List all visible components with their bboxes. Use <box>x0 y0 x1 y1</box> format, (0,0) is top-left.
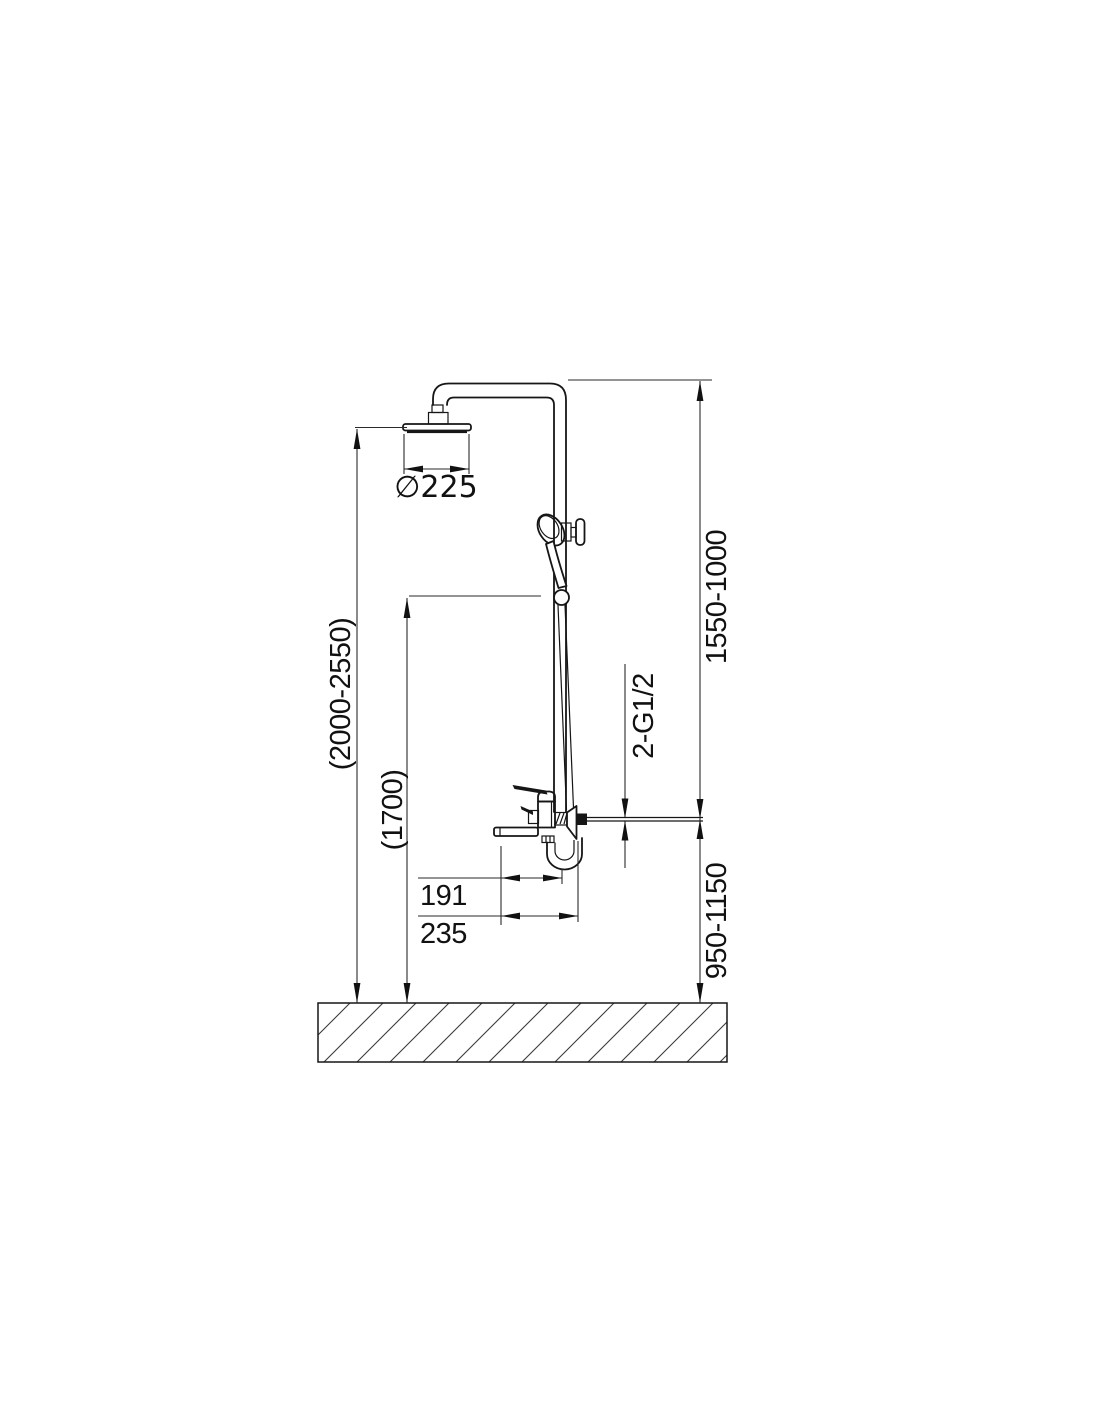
dim-arrow <box>697 983 704 1003</box>
dim-arrow <box>697 819 704 839</box>
hand-shower-face <box>535 512 563 542</box>
mixer-body <box>538 802 555 828</box>
dim-arrow <box>543 875 562 882</box>
thread-rib-2 <box>560 813 564 824</box>
hose-loop-inner <box>555 840 574 860</box>
dim-arrow <box>354 983 361 1003</box>
shower-arm-riser-outer <box>433 384 566 813</box>
dim-inlet-height-label: 950-1150 <box>701 863 733 979</box>
rain-shower-head <box>403 424 471 431</box>
dim-arrow <box>501 875 520 882</box>
dim-arrow <box>697 799 704 819</box>
thread-rib-1 <box>556 813 560 824</box>
hand-shower-handle <box>546 541 567 588</box>
dim-arrow <box>354 429 361 449</box>
rain-shower-face <box>407 431 467 434</box>
dim-arrow <box>697 381 704 401</box>
dim-wall-offset-label: 235 <box>420 918 467 950</box>
supply-stub <box>577 814 588 826</box>
dim-overall-height-label: (2000-2550) <box>325 618 357 771</box>
shower-arm-riser-inner <box>447 398 554 813</box>
floor-section <box>318 1003 727 1062</box>
dim-arrow <box>404 598 411 618</box>
dimensions: ∅225 (2000-2550) (1700) 1550-1000 950-11… <box>325 380 733 1003</box>
dim-arrow <box>404 983 411 1003</box>
dim-arrow <box>501 913 520 920</box>
dim-spout-offset-label: 191 <box>420 880 467 912</box>
mixer-lever <box>513 785 548 795</box>
shower-fixture <box>318 384 727 1063</box>
dim-column-range-label: 1550-1000 <box>701 530 733 664</box>
slider-ring <box>554 590 569 605</box>
dim-arrow <box>622 799 629 819</box>
dim-handshower-height-label: (1700) <box>377 770 409 851</box>
head-stem-collar <box>429 413 449 425</box>
dim-head-diameter-label: ∅225 <box>394 470 477 505</box>
dim-arrow <box>559 913 578 920</box>
bracket-knob <box>576 519 585 545</box>
dim-arrow <box>622 821 629 841</box>
shower-column-drawing: ∅225 (2000-2550) (1700) 1550-1000 950-11… <box>0 0 1100 1422</box>
head-stem-neck <box>432 405 443 413</box>
technical-drawing-page: ∅225 (2000-2550) (1700) 1550-1000 950-11… <box>0 0 1100 1422</box>
dim-thread-label: 2-G1/2 <box>628 673 660 759</box>
aerator-nut <box>542 836 554 843</box>
wall-escutcheon <box>567 806 577 839</box>
